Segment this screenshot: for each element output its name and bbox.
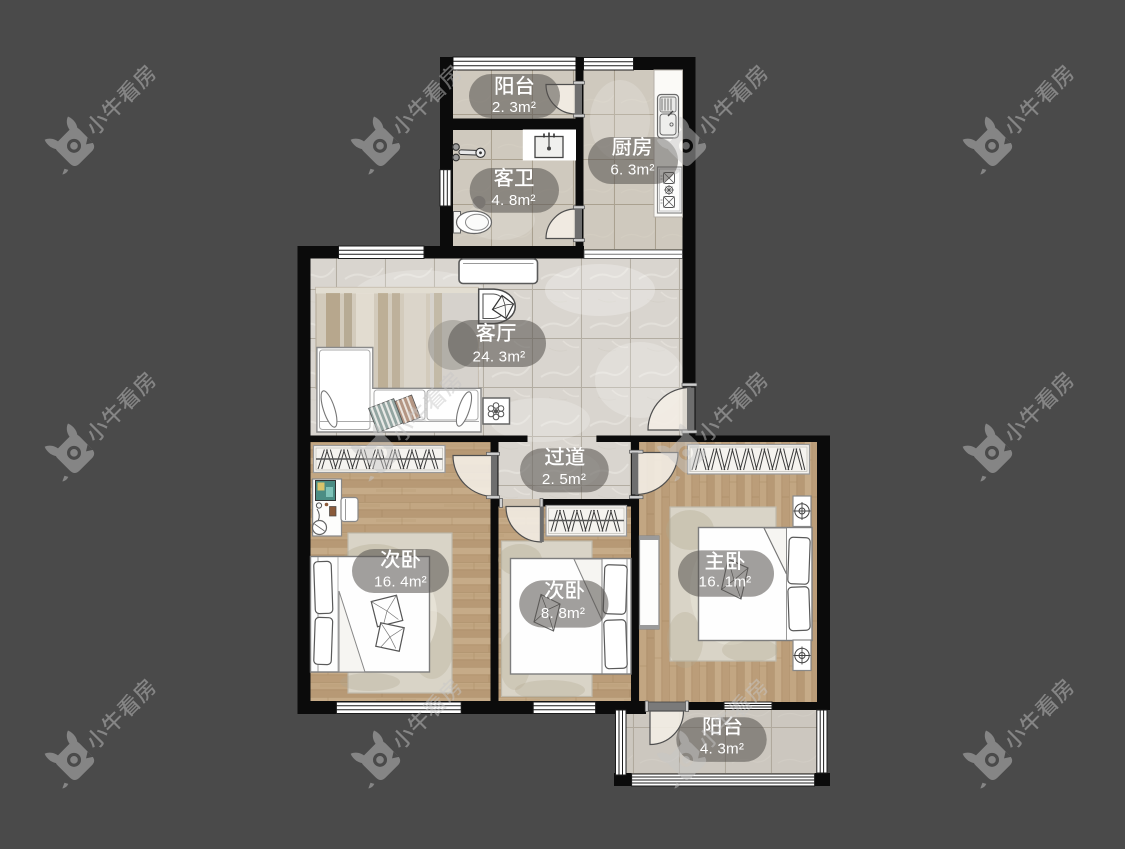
svg-text:8. 8m²: 8. 8m² [541,605,585,622]
svg-text:24. 3m²: 24. 3m² [473,349,526,366]
svg-text:16. 1m²: 16. 1m² [699,573,752,590]
svg-text:2. 5m²: 2. 5m² [542,471,586,488]
svg-text:4. 8m²: 4. 8m² [491,192,535,209]
svg-text:2. 3m²: 2. 3m² [492,99,536,116]
svg-text:16. 4m²: 16. 4m² [374,573,427,590]
svg-text:4. 3m²: 4. 3m² [700,740,744,757]
svg-text:6. 3m²: 6. 3m² [610,162,654,179]
